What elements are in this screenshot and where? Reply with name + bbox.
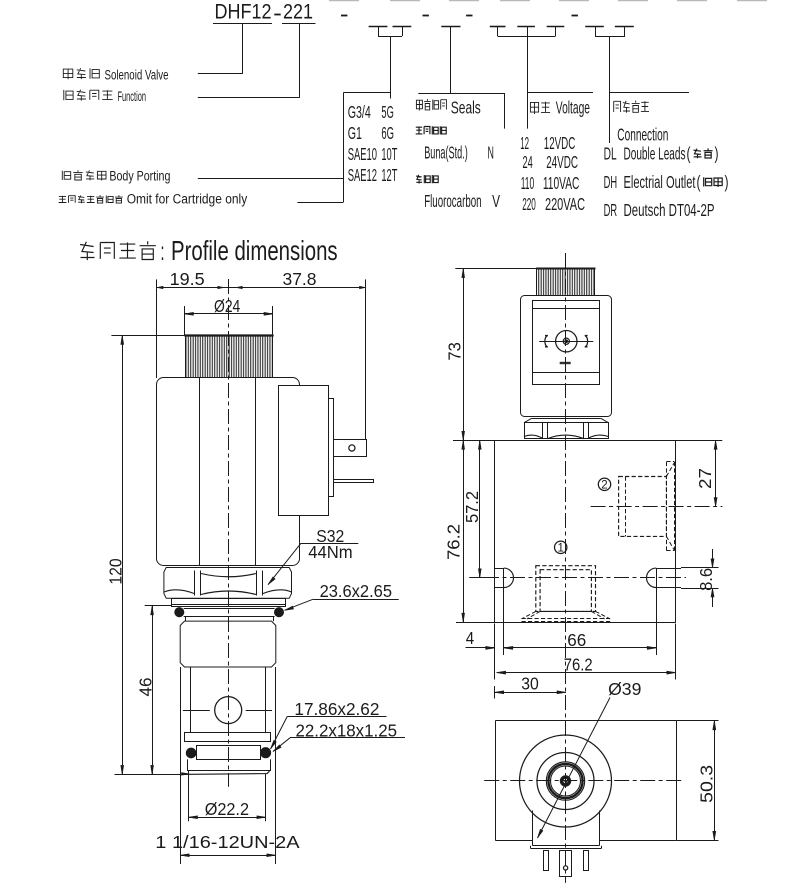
svg-text:DR: DR (604, 200, 618, 220)
svg-text:(: ( (687, 144, 691, 164)
svg-text:12VDC: 12VDC (544, 133, 576, 153)
svg-text:Voltage: Voltage (556, 98, 590, 118)
svg-text:1 1/16-12UN-2A: 1 1/16-12UN-2A (155, 832, 300, 852)
svg-text:220: 220 (522, 194, 536, 214)
svg-text:DHF12: DHF12 (215, 1, 272, 24)
svg-text:DH: DH (604, 172, 618, 192)
svg-text:Double Leads: Double Leads (624, 144, 686, 164)
svg-text:46: 46 (136, 678, 156, 697)
svg-text:2: 2 (601, 479, 607, 491)
svg-text:30: 30 (521, 673, 539, 693)
svg-text:Electrial Outlet: Electrial Outlet (624, 172, 696, 192)
svg-text:Ø39: Ø39 (608, 679, 641, 699)
svg-text::: : (161, 236, 165, 266)
svg-text:SAE10: SAE10 (348, 144, 377, 164)
svg-text:76.2: 76.2 (564, 654, 593, 674)
svg-text:5G: 5G (381, 102, 393, 122)
svg-text:220VAC: 220VAC (545, 194, 585, 214)
svg-text:Buna(Std.): Buna(Std.) (424, 143, 468, 163)
svg-text:120: 120 (105, 558, 125, 584)
svg-text:N: N (488, 143, 494, 163)
svg-text:SAE12: SAE12 (348, 165, 377, 185)
svg-text:Body Porting: Body Porting (109, 169, 170, 185)
svg-text:Deutsch DT04-2P: Deutsch DT04-2P (624, 200, 715, 220)
svg-text:73: 73 (445, 342, 465, 360)
svg-text:12T: 12T (381, 165, 397, 185)
svg-text:66: 66 (567, 630, 586, 650)
svg-text:110: 110 (521, 173, 535, 193)
svg-text:24VDC: 24VDC (546, 152, 578, 172)
svg-text:44Nm: 44Nm (308, 542, 352, 562)
svg-text:): ) (715, 144, 719, 164)
svg-text:50.3: 50.3 (696, 765, 716, 803)
svg-text:27: 27 (695, 468, 715, 489)
svg-text:37.8: 37.8 (283, 269, 317, 289)
svg-text:G1: G1 (348, 123, 362, 143)
svg-text:57.2: 57.2 (462, 491, 482, 523)
svg-text:Connection: Connection (617, 125, 668, 145)
svg-text:(: ( (697, 172, 701, 192)
svg-text:24: 24 (523, 152, 534, 172)
svg-text:DL: DL (604, 144, 617, 164)
svg-text:Omit for Cartridge only: Omit for Cartridge only (127, 192, 248, 208)
svg-text:110VAC: 110VAC (543, 173, 580, 193)
svg-text:): ) (725, 172, 729, 192)
svg-text:23.6x2.65: 23.6x2.65 (320, 581, 392, 601)
svg-text:10T: 10T (381, 144, 397, 164)
svg-text:Fluorocarbon: Fluorocarbon (424, 191, 481, 211)
svg-text:1: 1 (557, 542, 563, 554)
svg-text:G3/4: G3/4 (348, 102, 371, 122)
svg-text:76.2: 76.2 (444, 524, 464, 560)
svg-text:Function: Function (118, 89, 147, 105)
svg-text:Seals: Seals (451, 98, 481, 118)
svg-text:6G: 6G (381, 123, 394, 143)
svg-text:19.5: 19.5 (170, 269, 205, 289)
svg-text:4: 4 (466, 628, 475, 648)
svg-text:12: 12 (520, 133, 529, 153)
svg-text:221: 221 (283, 1, 313, 24)
svg-text:Profile dimensions: Profile dimensions (171, 235, 338, 266)
svg-text:Ø22.2: Ø22.2 (205, 799, 249, 819)
svg-text:8.6: 8.6 (696, 568, 716, 591)
svg-text:V: V (492, 191, 500, 211)
svg-text:Ø24: Ø24 (214, 296, 241, 316)
svg-text:Solenoid Valve: Solenoid Valve (105, 67, 169, 83)
